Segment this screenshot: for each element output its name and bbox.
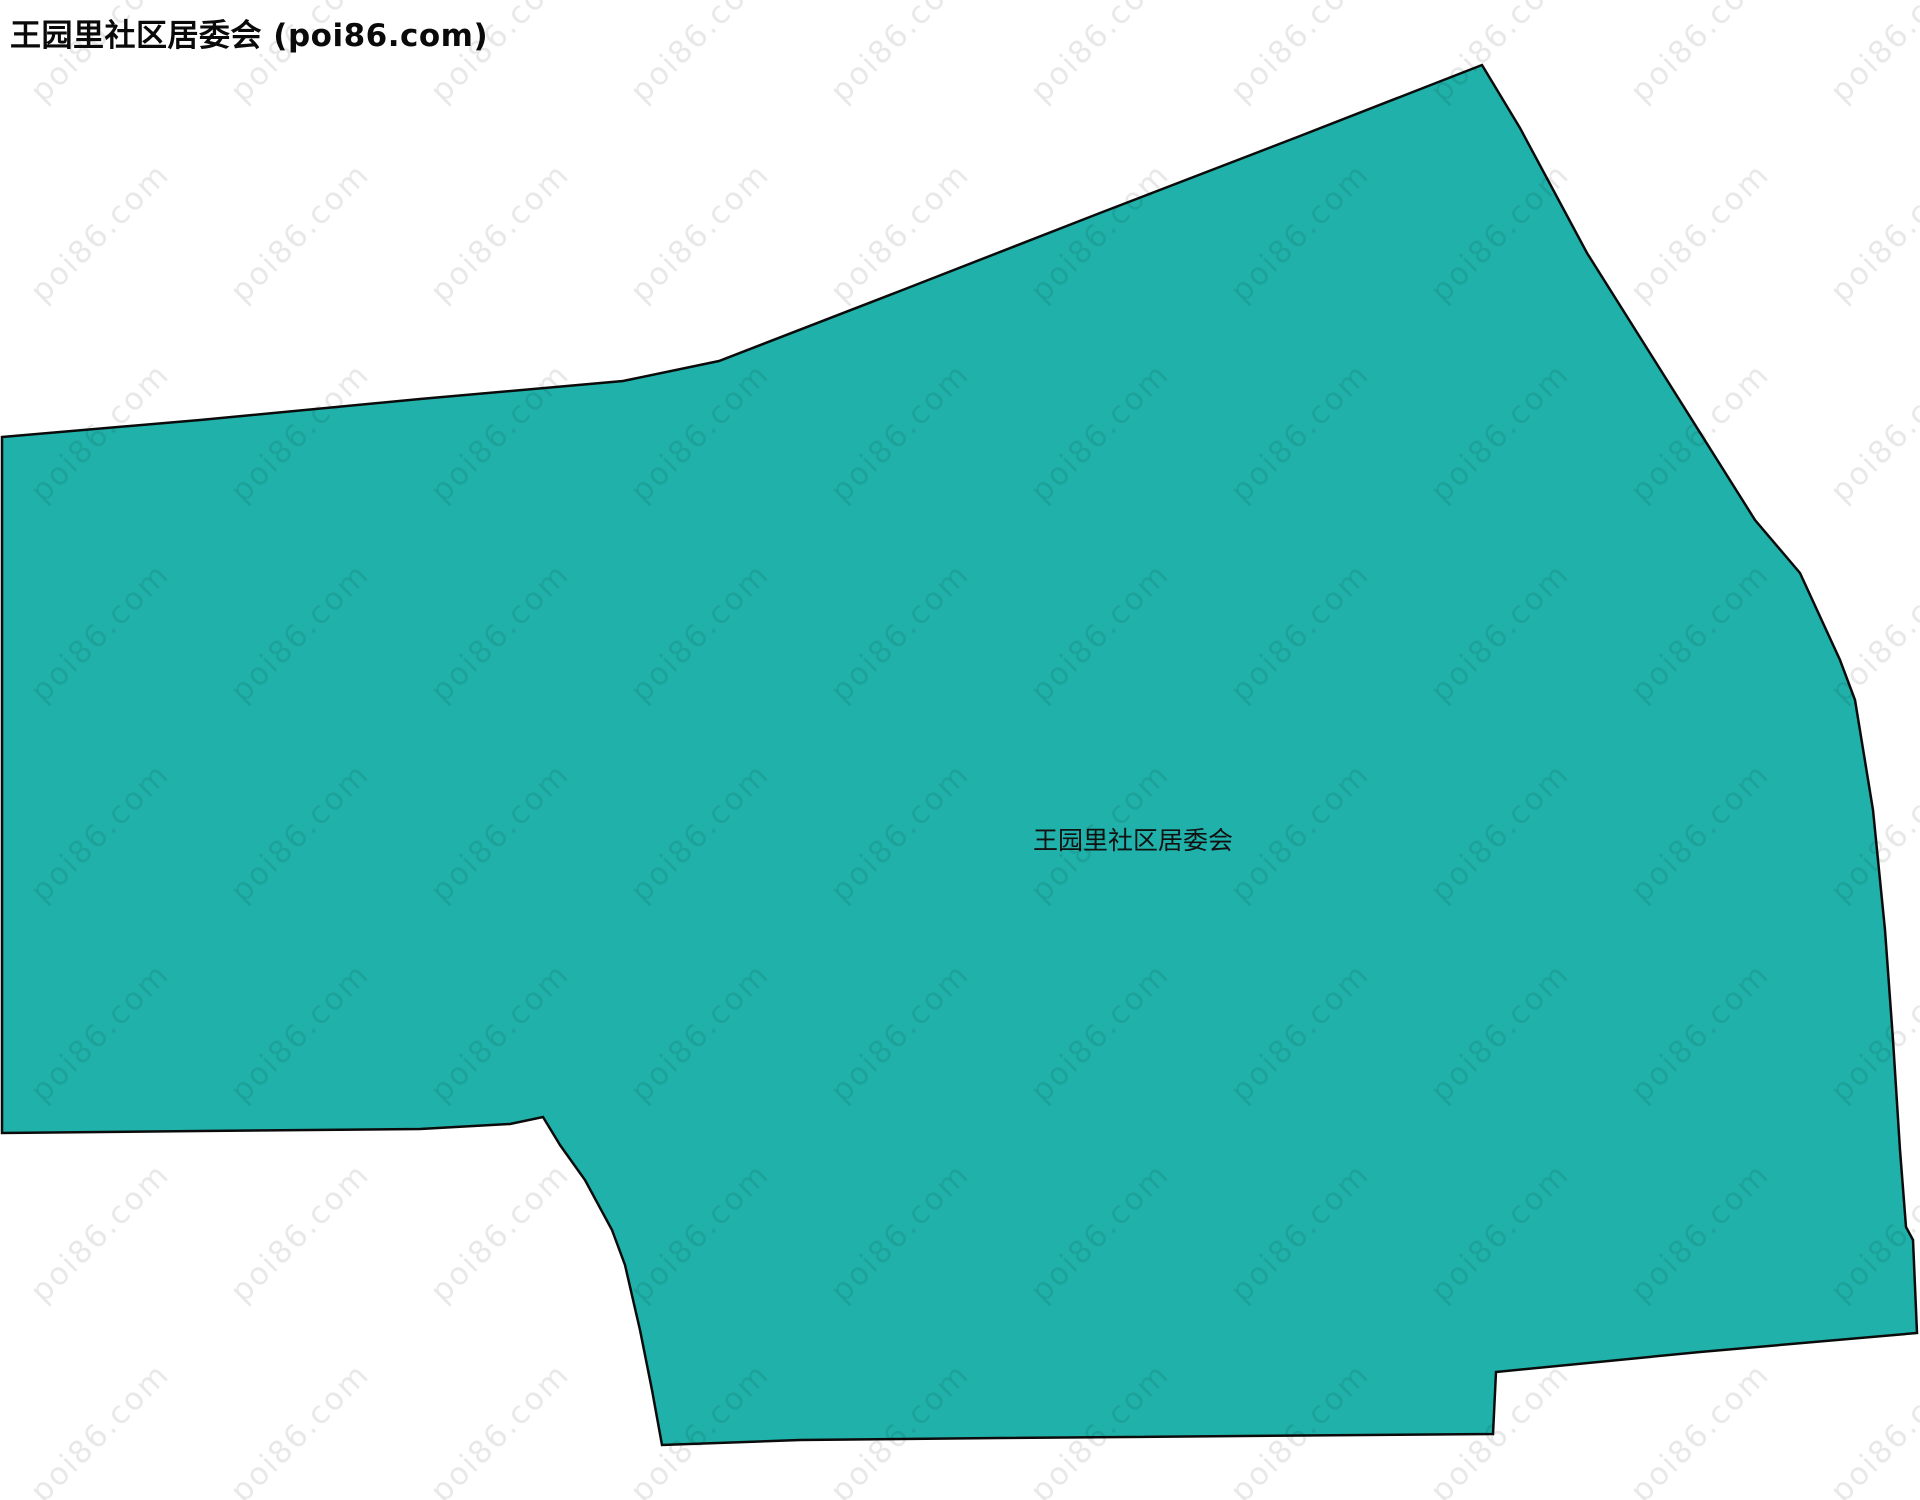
boundary-map: 王园里社区居委会 <box>0 0 1920 1500</box>
region-label: 王园里社区居委会 <box>1033 826 1233 855</box>
page-title: 王园里社区居委会 (poi86.com) <box>10 10 488 55</box>
map-canvas: 王园里社区居委会 poi86.compoi86.compoi86.compoi8… <box>0 0 1920 1500</box>
region-polygon <box>2 65 1917 1445</box>
